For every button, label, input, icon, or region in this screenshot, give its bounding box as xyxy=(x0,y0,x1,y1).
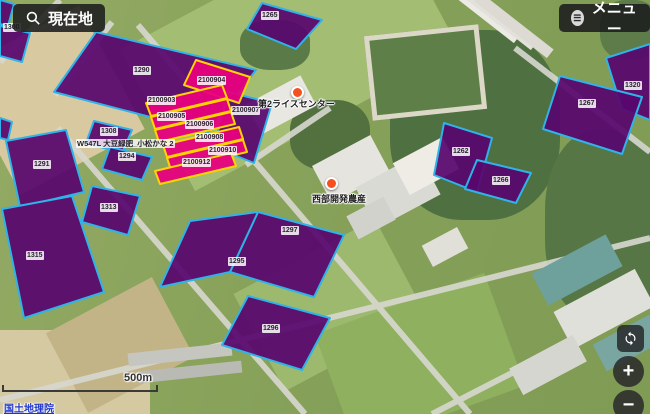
attribution-link[interactable]: 国土地理院 xyxy=(4,400,54,414)
scale-label: 500m xyxy=(124,372,152,384)
zoom-out-button[interactable]: − xyxy=(613,390,644,414)
field-polygon[interactable] xyxy=(0,0,14,26)
industrial-roof xyxy=(509,335,587,395)
menu-label: メニュー xyxy=(591,0,638,39)
sync-icon xyxy=(623,330,638,347)
hamburger-icon: ☰ xyxy=(571,10,584,26)
scale-bar xyxy=(2,385,158,392)
field-polygon[interactable] xyxy=(102,147,152,180)
poi-marker[interactable] xyxy=(291,86,304,99)
refresh-button[interactable] xyxy=(617,325,644,352)
current-location-label: 現在地 xyxy=(48,8,93,29)
building-roof xyxy=(422,227,469,267)
poi-marker[interactable] xyxy=(325,177,338,190)
current-location-button[interactable]: 現在地 xyxy=(13,4,105,32)
search-icon xyxy=(25,10,41,26)
zoom-in-button[interactable]: + xyxy=(613,356,644,387)
menu-button[interactable]: ☰ メニュー xyxy=(559,4,650,32)
field-polygon[interactable] xyxy=(82,186,140,235)
fenced-compound xyxy=(364,24,487,121)
map-canvas[interactable]: 1300129012651308129412911313131521009071… xyxy=(0,0,650,414)
